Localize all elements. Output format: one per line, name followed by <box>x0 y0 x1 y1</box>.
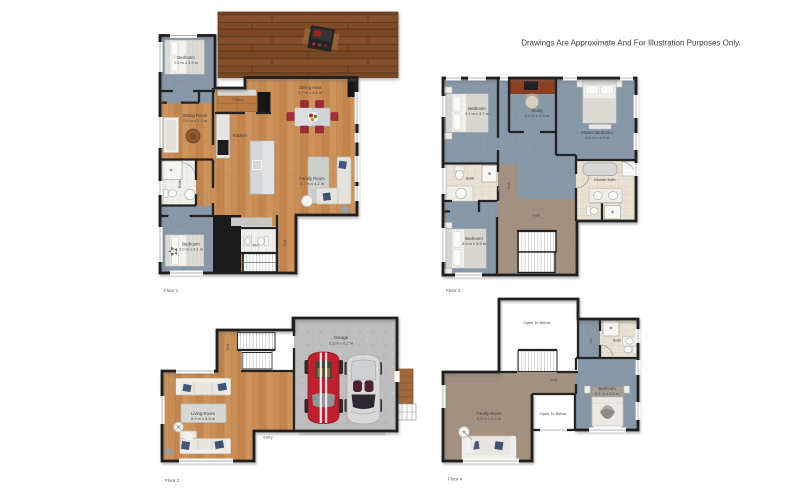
svg-text:3.0 m x 3.5 m: 3.0 m x 3.5 m <box>462 241 487 246</box>
svg-text:Bath: Bath <box>613 338 621 343</box>
svg-text:3.7 m x 3.8 m: 3.7 m x 3.8 m <box>298 90 323 95</box>
svg-text:Floor 2: Floor 2 <box>165 478 180 483</box>
svg-text:4.7 m x 4.2 m: 4.7 m x 4.2 m <box>300 181 325 186</box>
svg-text:Master Bath: Master Bath <box>594 177 616 182</box>
svg-text:Bath: Bath <box>177 180 182 188</box>
svg-text:Pantry: Pantry <box>232 97 244 102</box>
svg-text:2.5 m x 3.5 m: 2.5 m x 3.5 m <box>174 60 199 65</box>
svg-text:Bath: Bath <box>466 176 474 181</box>
svg-text:Hall: Hall <box>551 377 558 382</box>
svg-text:2.0 m x 1.9 m: 2.0 m x 1.9 m <box>525 113 550 118</box>
svg-text:Hall: Hall <box>282 239 287 246</box>
svg-text:5.5 m x 6.2 m: 5.5 m x 6.2 m <box>329 341 354 346</box>
svg-text:Open To Below: Open To Below <box>539 411 566 416</box>
svg-text:Kitchen: Kitchen <box>233 133 248 138</box>
svg-text:Hall: Hall <box>533 213 540 218</box>
svg-text:W/c: W/c <box>253 243 260 248</box>
svg-text:Dn: Dn <box>588 338 593 343</box>
svg-text:3.7 m x 3.0 m: 3.7 m x 3.0 m <box>595 391 620 396</box>
svg-text:3.0 m x 3.1 m: 3.0 m x 3.1 m <box>179 247 204 252</box>
svg-text:4.5 m x 4.5 m: 4.5 m x 4.5 m <box>585 135 610 140</box>
svg-text:Floor 1: Floor 1 <box>164 288 179 293</box>
svg-text:5.9 m x 5.5 m: 5.9 m x 5.5 m <box>191 416 216 421</box>
svg-text:4.1 m x 3.7 m: 4.1 m x 3.7 m <box>465 111 490 116</box>
svg-text:Hall: Hall <box>506 182 511 189</box>
svg-text:Entry: Entry <box>263 435 272 440</box>
svg-text:Hall: Hall <box>225 343 230 350</box>
svg-text:Floor 4: Floor 4 <box>448 477 463 482</box>
svg-text:Drawings Are Approximate And F: Drawings Are Approximate And For Illustr… <box>521 39 741 48</box>
svg-text:5.9 m x 6.2 m: 5.9 m x 6.2 m <box>477 416 502 421</box>
svg-text:Garage: Garage <box>334 335 349 340</box>
svg-text:Floor 3: Floor 3 <box>446 288 461 293</box>
svg-text:2.8 m x 2.2 m: 2.8 m x 2.2 m <box>183 118 208 123</box>
svg-text:Open To Below: Open To Below <box>523 320 550 325</box>
